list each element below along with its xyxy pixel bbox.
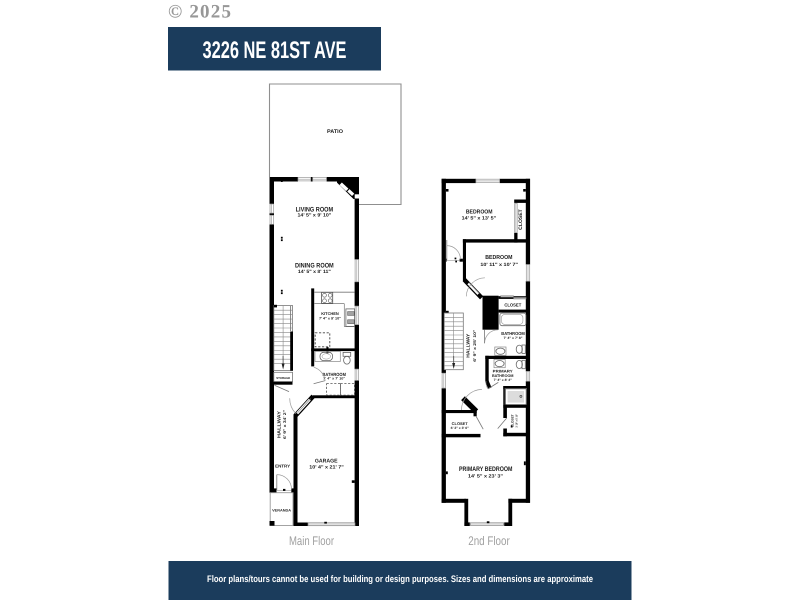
svg-text:7' 4" x 8' 4": 7' 4" x 8' 4" xyxy=(494,378,513,382)
svg-text:3' 10" x 5' 10": 3' 10" x 5' 10" xyxy=(515,414,518,428)
svg-text:PRIMARY BEDROOM: PRIMARY BEDROOM xyxy=(459,466,513,473)
svg-text:HALLWAY: HALLWAY xyxy=(276,411,281,438)
svg-text:6' 9" x 25' 10": 6' 9" x 25' 10" xyxy=(472,330,477,362)
svg-text:VERANDA: VERANDA xyxy=(272,509,292,513)
svg-text:PRIMARY: PRIMARY xyxy=(493,370,514,374)
svg-text:BEDROOM: BEDROOM xyxy=(485,254,512,261)
svg-text:ENTRY: ENTRY xyxy=(275,464,290,469)
svg-text:HALLWAY: HALLWAY xyxy=(465,334,470,358)
svg-text:Main Floor: Main Floor xyxy=(289,534,334,548)
svg-text:6' 9" x 34' 2": 6' 9" x 34' 2" xyxy=(282,410,287,439)
svg-text:7' 4" x 7' 10": 7' 4" x 7' 10" xyxy=(323,376,345,380)
svg-text:CLOSET: CLOSET xyxy=(511,414,515,427)
svg-text:10' 11" x 10' 7": 10' 11" x 10' 7" xyxy=(480,262,518,267)
svg-text:14' 5" x 8' 11": 14' 5" x 8' 11" xyxy=(298,269,331,274)
svg-text:STORAGE: STORAGE xyxy=(276,376,290,380)
svg-text:14' 5" x 9' 10": 14' 5" x 9' 10" xyxy=(298,213,332,218)
svg-text:CLOSET: CLOSET xyxy=(504,303,521,308)
svg-text:14' 5" x 23' 3": 14' 5" x 23' 3" xyxy=(468,474,503,479)
svg-text:PATIO: PATIO xyxy=(327,129,343,135)
svg-text:KITCHEN: KITCHEN xyxy=(321,311,339,316)
svg-text:7' 4" x 7' 8": 7' 4" x 7' 8" xyxy=(504,336,524,340)
svg-text:3226 NE 81ST AVE: 3226 NE 81ST AVE xyxy=(203,37,347,64)
svg-text:Floor plans/tours cannot be us: Floor plans/tours cannot be used for bui… xyxy=(207,574,593,585)
svg-text:CLOSET: CLOSET xyxy=(518,209,524,230)
svg-text:BEDROOM: BEDROOM xyxy=(466,208,493,215)
svg-text:10' 4" x 21' 7": 10' 4" x 21' 7" xyxy=(309,464,344,469)
svg-text:14' 5" x 13' 5": 14' 5" x 13' 5" xyxy=(462,215,497,220)
svg-text:7' 4" x 9' 10": 7' 4" x 9' 10" xyxy=(319,317,341,321)
svg-text:© 2025: © 2025 xyxy=(168,2,232,23)
svg-text:2nd Floor: 2nd Floor xyxy=(468,534,510,548)
svg-text:6' 2" x 3' 6": 6' 2" x 3' 6" xyxy=(451,426,470,430)
